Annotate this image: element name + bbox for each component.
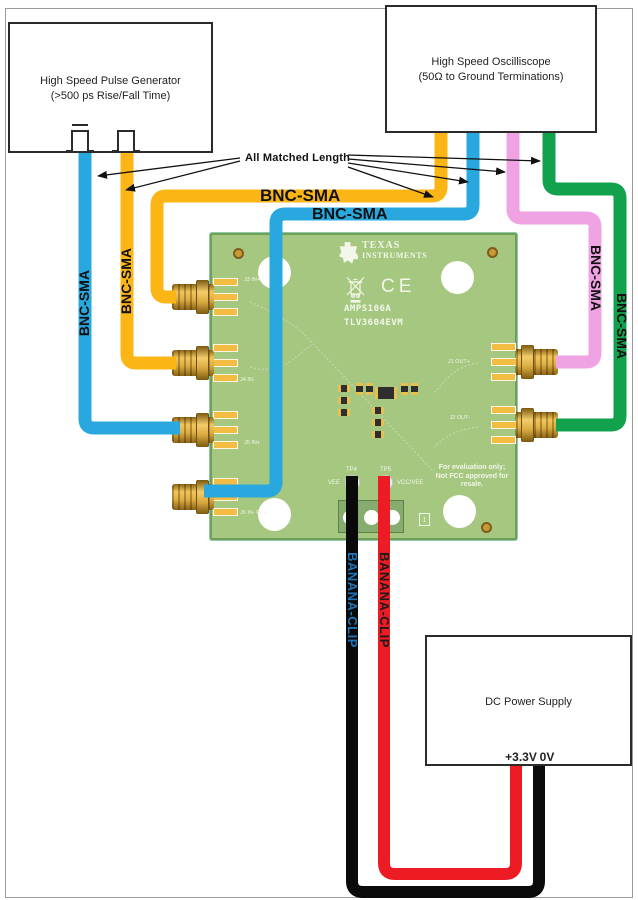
bnc-sma-label-pink: BNC-SMA	[588, 233, 604, 323]
bnc-sma-label-yellow: BNC-SMA	[260, 186, 340, 206]
sma-connector-out2	[490, 405, 558, 445]
fiducial-dot	[481, 522, 492, 533]
ti-logo: TEXAS INSTRUMENTS	[338, 241, 427, 264]
oscilloscope-subtitle: (50Ω to Ground Terminations)	[387, 70, 595, 85]
power-supply-title: DC Power Supply	[427, 695, 630, 710]
tp4-label: TP4	[346, 467, 357, 473]
ti-logo-icon	[338, 241, 358, 264]
bnc-sma-label-blue: BNC-SMA	[312, 206, 388, 224]
comparator-ic	[375, 387, 397, 399]
mounting-hole	[441, 261, 474, 294]
bnc-sma-label-gen-yellow: BNC-SMA	[118, 236, 134, 326]
tp4-test-point	[345, 475, 360, 490]
refdes-j6: J6 IN- REF	[240, 510, 267, 516]
tp5-label: TP5	[380, 467, 391, 473]
sma-connector-out1	[490, 342, 558, 382]
pulse-generator-title: High Speed Pulse Generator	[10, 74, 211, 89]
fiducial-dot	[233, 248, 244, 259]
sma-connector-in4	[172, 477, 238, 517]
pulse-generator-subtitle: (>500 ps Rise/Fall Time)	[10, 89, 211, 104]
negative-terminal-label: 0V	[531, 750, 563, 765]
oscilloscope-title: High Speed Oscilliscope	[387, 55, 595, 70]
refdes-j2: J2 OUT-	[440, 415, 470, 421]
pulse-generator-box: High Speed Pulse Generator (>500 ps Rise…	[8, 22, 213, 153]
refdes-j3: J3 IN+	[244, 277, 260, 283]
ti-logo-text2: INSTRUMENTS	[362, 251, 427, 260]
tp5-test-point	[378, 475, 393, 490]
evm-board: TEXAS INSTRUMENTS CE AMPS106A TLV3604EVM	[210, 233, 517, 540]
bnc-sma-label-gen-blue: BNC-SMA	[76, 258, 92, 348]
board-part-number: AMPS106A	[344, 304, 391, 314]
test-setup-diagram: High Speed Pulse Generator (>500 ps Rise…	[0, 0, 638, 900]
weee-bin-icon	[346, 275, 365, 304]
sma-connector-in2	[172, 343, 238, 383]
tp5-signal-label: VCC/VEE	[397, 480, 423, 486]
eval-warning-line2: Not FCC approved for resale.	[426, 473, 518, 490]
eval-warning: For evaluation only; Not FCC approved fo…	[426, 464, 518, 490]
ce-mark: CE	[381, 276, 415, 298]
oscilloscope-box: High Speed Oscilliscope (50Ω to Ground T…	[385, 5, 597, 133]
sma-connector-in3	[172, 410, 238, 450]
bnc-sma-label-green: BNC-SMA	[614, 281, 630, 371]
symbol-1-box: 1	[419, 513, 430, 526]
banana-clip-label-black-wire: BANANA-CLIP	[344, 540, 360, 660]
refdes-j4: J4 IN-	[240, 377, 255, 383]
eval-warning-line1: For evaluation only;	[426, 464, 518, 473]
refdes-j5: J5 IN+	[244, 440, 260, 446]
terminal-block	[338, 500, 404, 533]
fiducial-dot	[487, 247, 498, 258]
refdes-j1: J1 OUT+	[440, 359, 470, 365]
tp4-signal-label: VEE	[328, 480, 340, 486]
sma-connector-in1	[172, 277, 238, 317]
power-supply-box: DC Power Supply +3.3V 0V	[425, 635, 632, 766]
banana-clip-label-red-wire: BANANA-CLIP	[376, 540, 392, 660]
mounting-hole	[258, 256, 291, 289]
matched-length-label: All Matched Length	[245, 152, 350, 164]
mounting-hole	[443, 495, 476, 528]
board-evm-name: TLV3604EVM	[344, 318, 403, 328]
ti-logo-text1: TEXAS	[362, 241, 427, 251]
